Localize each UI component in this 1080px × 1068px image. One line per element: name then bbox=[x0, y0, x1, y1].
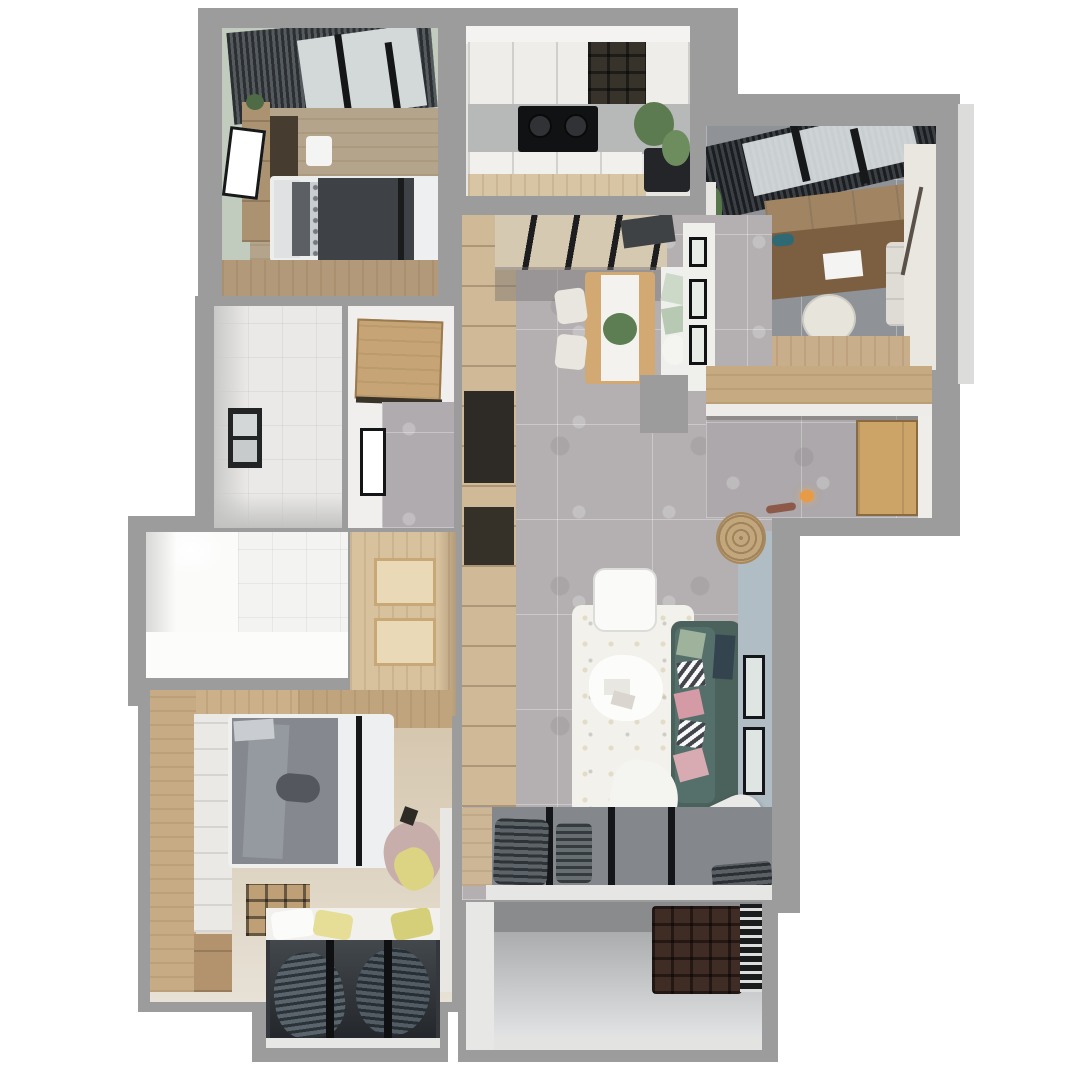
room-hallway bbox=[348, 306, 454, 528]
shoe-cabinet-top bbox=[706, 366, 932, 404]
cabinet-dark-panel bbox=[464, 507, 514, 565]
bath-window-pane bbox=[233, 440, 257, 462]
wood-stool bbox=[716, 512, 766, 564]
floorplan-stage bbox=[0, 0, 1080, 1068]
sofa-pillow bbox=[676, 659, 705, 688]
curtain-roll bbox=[556, 823, 592, 883]
table-lamp bbox=[306, 136, 332, 166]
bright-floor bbox=[146, 632, 348, 678]
candle bbox=[800, 490, 814, 502]
window-mullion bbox=[326, 940, 334, 1040]
wardrobe-drawers bbox=[194, 934, 232, 992]
white-wardrobe bbox=[194, 714, 232, 932]
room-entry-hall bbox=[706, 366, 932, 518]
room-kitchen bbox=[466, 26, 690, 196]
wall-highlight-right bbox=[958, 104, 974, 384]
wall-frame bbox=[689, 279, 707, 319]
sofa-pillow bbox=[676, 719, 705, 748]
side-window bbox=[740, 904, 762, 992]
bed-pillow-roll bbox=[275, 772, 321, 804]
foot-bench bbox=[222, 260, 438, 296]
wall-frame bbox=[689, 237, 707, 267]
room-bathroom bbox=[214, 306, 342, 528]
wall-frame bbox=[743, 655, 765, 719]
burner bbox=[564, 114, 588, 138]
desk-papers bbox=[823, 250, 864, 280]
left-wall-strip bbox=[466, 902, 494, 1050]
kitchen-floor bbox=[468, 174, 646, 196]
dining-chair bbox=[554, 334, 587, 371]
plant-rack bbox=[652, 906, 742, 994]
closet-panel bbox=[374, 558, 436, 606]
window-mullion bbox=[668, 807, 675, 887]
cabinet-dark-panel bbox=[464, 391, 514, 483]
entry-door bbox=[856, 420, 918, 516]
window-sill bbox=[486, 885, 772, 900]
table-plant bbox=[603, 313, 637, 345]
plant bbox=[662, 130, 690, 166]
bed-strap bbox=[398, 178, 404, 262]
bed-sheet-end bbox=[414, 178, 438, 262]
closet-panel bbox=[374, 618, 436, 666]
wall-art-frame bbox=[360, 428, 386, 496]
window-ledge-wood bbox=[462, 808, 492, 886]
burner bbox=[528, 114, 552, 138]
sofa-throw bbox=[712, 634, 735, 679]
room-closet bbox=[350, 532, 456, 716]
dining-chair bbox=[554, 287, 588, 325]
window-mullion bbox=[384, 940, 392, 1040]
ac-vent bbox=[620, 215, 675, 248]
open-door bbox=[355, 319, 444, 402]
room-shower bbox=[146, 532, 348, 678]
bed-pillow bbox=[233, 719, 274, 742]
wall-stub bbox=[640, 375, 688, 433]
pouf bbox=[593, 568, 657, 632]
window-sill-bottom bbox=[266, 1038, 440, 1048]
wall-frame bbox=[743, 727, 765, 795]
room-balcony bbox=[466, 902, 764, 1050]
bed-strap bbox=[356, 716, 362, 866]
sill-pillow bbox=[270, 908, 315, 941]
right-wall bbox=[918, 416, 932, 518]
upper-cabinets bbox=[468, 42, 690, 106]
sofa-pillow bbox=[676, 629, 706, 659]
sofa-pillow bbox=[674, 689, 705, 720]
wall-frame bbox=[689, 325, 707, 365]
curtain-roll bbox=[493, 818, 549, 886]
hall-floor bbox=[382, 402, 454, 528]
room-bay-window bbox=[266, 908, 440, 1048]
plant bbox=[246, 94, 264, 110]
bath-window-pane bbox=[233, 414, 257, 436]
cabinet-counter bbox=[706, 404, 932, 416]
bottom-sill bbox=[494, 1036, 762, 1050]
open-shelf-dark bbox=[588, 42, 646, 108]
closet-shade bbox=[438, 532, 456, 716]
room-bedroom-1 bbox=[222, 28, 438, 296]
window-mullion bbox=[608, 807, 615, 887]
right-wall-strip bbox=[440, 808, 452, 992]
side-wood-strip bbox=[150, 690, 196, 992]
floor-shade bbox=[214, 494, 342, 528]
floor-tray bbox=[766, 502, 797, 514]
